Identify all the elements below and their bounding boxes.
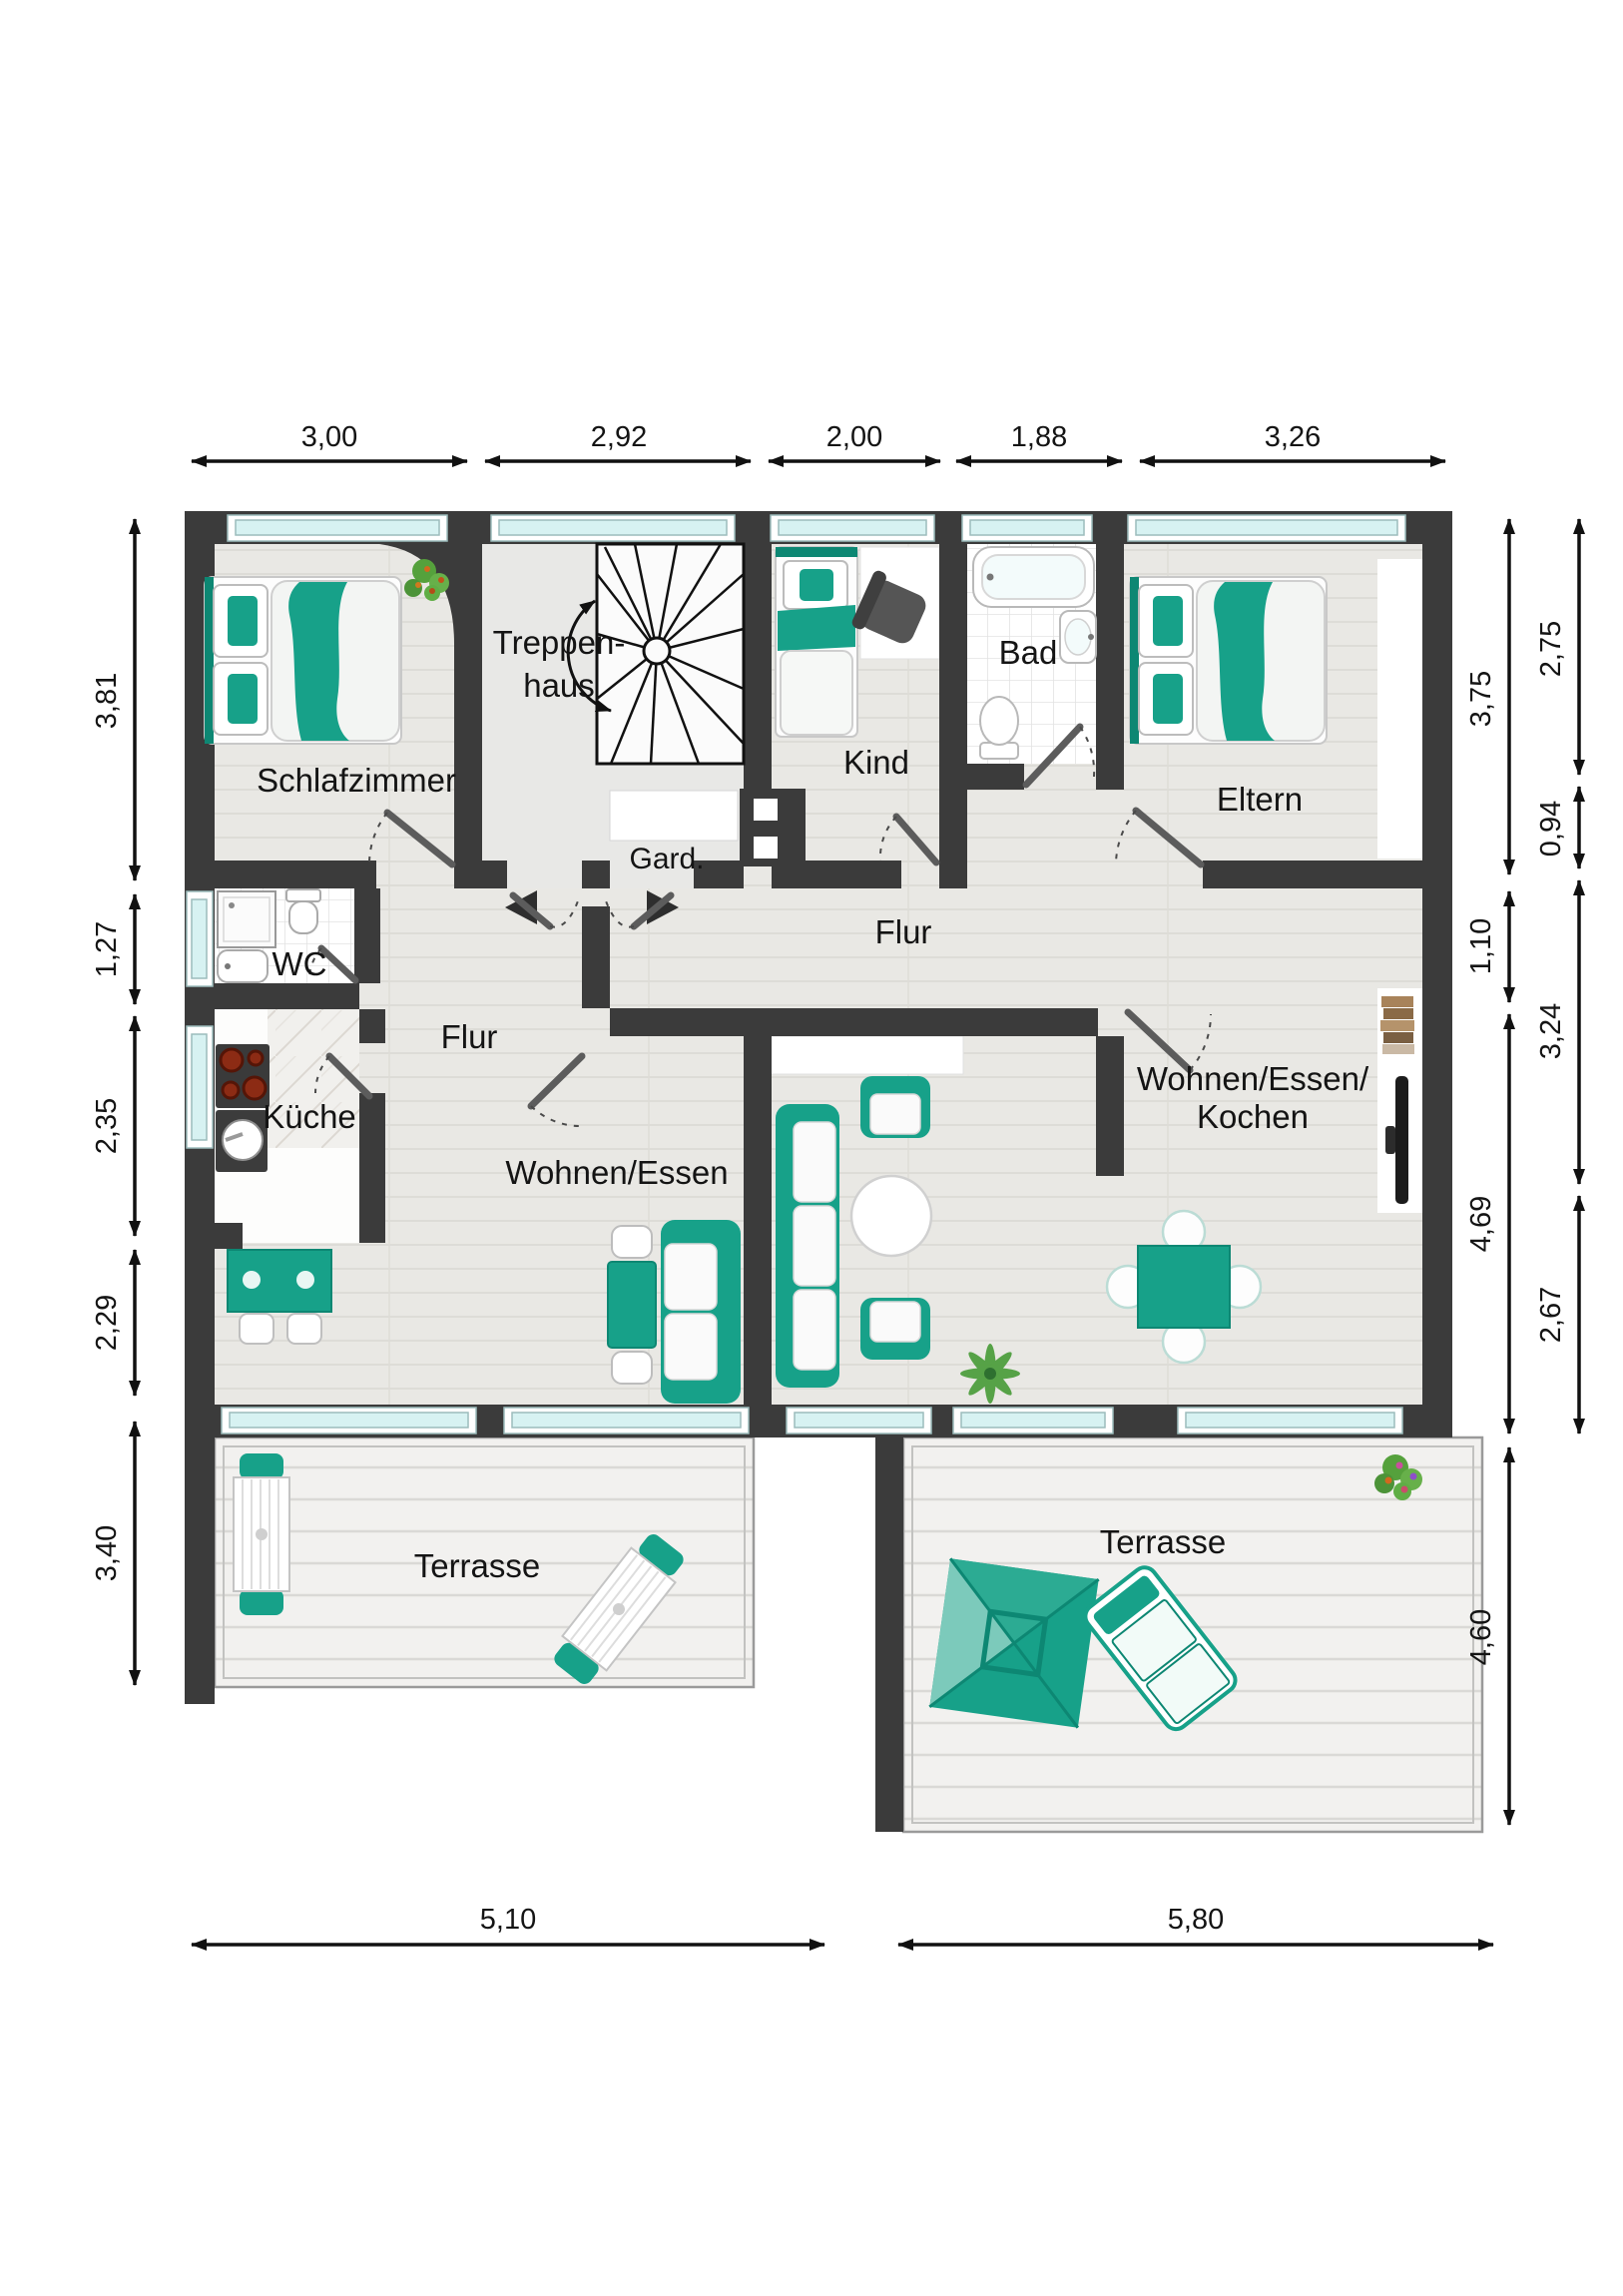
wall-schlafzimmer-bottom <box>215 861 376 888</box>
wall-wc-bottom <box>185 983 359 1009</box>
living-armchair-top <box>860 1076 930 1138</box>
living-round-table <box>851 1176 931 1256</box>
room-label-terrasse-left: Terrasse <box>414 1547 541 1584</box>
bad-sink <box>1060 611 1096 663</box>
living-sofa <box>776 1104 839 1388</box>
dim-left-3: 2,29 <box>91 1295 123 1351</box>
chimney-flue-1 <box>754 799 778 821</box>
window-bottom-we-2 <box>504 1408 749 1434</box>
wall-flur-bottom <box>610 1008 1098 1036</box>
room-label-eltern: Eltern <box>1217 781 1303 818</box>
room-label-gard: Gard. <box>629 843 704 875</box>
wall-bad-eltern <box>1096 544 1124 790</box>
wc-toilet <box>286 889 320 933</box>
wall-kind-bottom <box>772 861 901 888</box>
window-left-wc <box>187 891 213 986</box>
dim-top-3: 1,88 <box>1011 421 1067 453</box>
wall-flur-divider <box>582 906 610 1008</box>
living-sideboard <box>759 1036 963 1074</box>
kueche-sink <box>216 1110 268 1172</box>
wall-central-wek <box>1096 1036 1124 1176</box>
dim-top-2: 2,00 <box>826 421 882 453</box>
dim-top-0: 3,00 <box>301 421 357 453</box>
wall-kueche-right <box>359 1093 385 1243</box>
floor-plan-svg: Schlafzimmer Treppen- haus Gard. Kind Ba… <box>0 0 1623 2296</box>
room-label-flur-left: Flur <box>441 1018 498 1055</box>
window-bottom-wek-2 <box>1178 1408 1402 1434</box>
dim-chain-left: 3,81 1,27 2,35 2,29 3,40 <box>91 519 135 1685</box>
toilet <box>980 697 1018 759</box>
dim-chain-top: 3,00 2,92 2,00 1,88 3,26 <box>192 421 1445 461</box>
dim-right-outer-1: 0,94 <box>1535 801 1567 857</box>
room-label-terrasse-right: Terrasse <box>1100 1523 1227 1560</box>
wall-terrace-right-left <box>875 1437 903 1832</box>
room-label-wek-2: Kochen <box>1197 1098 1309 1135</box>
eltern-wardrobe <box>1377 559 1422 859</box>
we-small-table-set <box>608 1226 656 1384</box>
living-armchair-bottom <box>860 1298 930 1360</box>
terrace-left-table-1 <box>234 1453 289 1615</box>
dim-left-0: 3,81 <box>91 673 123 729</box>
dim-chain-right-outer: 2,75 0,94 3,24 2,67 <box>1535 519 1579 1434</box>
window-top-eltern <box>1128 515 1405 541</box>
room-label-wohnen-essen: Wohnen/Essen <box>505 1154 728 1191</box>
dim-bottom-0: 5,10 <box>480 1904 536 1936</box>
dim-top-1: 2,92 <box>591 421 647 453</box>
window-top-kind <box>771 515 934 541</box>
wall-kueche-stub <box>185 1223 243 1249</box>
wc-sink <box>218 950 268 982</box>
window-top-treppenhaus <box>491 515 735 541</box>
living-plant <box>960 1344 1020 1404</box>
schlafzimmer-bed <box>205 577 401 744</box>
wall-kind-bad <box>939 544 967 764</box>
kind-bed <box>776 547 857 737</box>
dim-left-4: 3,40 <box>91 1525 123 1581</box>
wall-we-central <box>744 1036 772 1405</box>
room-label-bad: Bad <box>999 634 1058 671</box>
floor-plan-page: Schlafzimmer Treppen- haus Gard. Kind Ba… <box>0 0 1623 2296</box>
wall-bad-bottom <box>939 764 1024 790</box>
dim-chain-right-inner: 3,75 1,10 4,69 4,60 <box>1465 519 1509 1825</box>
wall-entry-mid-pier <box>582 861 610 888</box>
dim-right-inner-2: 4,69 <box>1465 1196 1497 1252</box>
garderobe-cabinet <box>610 791 738 841</box>
wall-entry-left-pier <box>482 861 507 888</box>
dim-top-4: 3,26 <box>1265 421 1321 453</box>
chimney-flue-2 <box>754 837 778 859</box>
window-bottom-living <box>787 1408 931 1434</box>
window-top-bad <box>962 515 1092 541</box>
bathtub <box>973 547 1094 607</box>
wall-treppenhaus-kind <box>744 544 772 789</box>
room-label-kueche: Küche <box>263 1098 356 1135</box>
room-label-treppenhaus-2: haus <box>523 667 595 704</box>
window-left-kueche <box>187 1026 213 1148</box>
room-label-wek-1: Wohnen/Essen/ <box>1137 1060 1369 1097</box>
room-label-kind: Kind <box>843 744 909 781</box>
dim-right-outer-3: 2,67 <box>1535 1287 1567 1343</box>
dim-bottom-1: 5,80 <box>1168 1904 1224 1936</box>
dim-left-1: 1,27 <box>91 921 123 977</box>
wall-kueche-top-seg <box>359 1009 385 1043</box>
dim-right-outer-0: 2,75 <box>1535 621 1567 677</box>
window-bottom-wek-1 <box>953 1408 1113 1434</box>
dim-left-2: 2,35 <box>91 1098 123 1154</box>
we-loveseat <box>661 1220 741 1404</box>
eltern-bed <box>1130 577 1327 744</box>
room-label-schlafzimmer: Schlafzimmer <box>257 762 456 799</box>
stove <box>216 1044 270 1108</box>
dim-chain-bottom: 5,10 5,80 <box>192 1904 1493 1945</box>
room-label-wc: WC <box>272 945 327 982</box>
dim-right-inner-0: 3,75 <box>1465 671 1497 727</box>
terrace-parasol <box>929 1558 1098 1727</box>
room-label-flur-center: Flur <box>875 913 932 950</box>
wall-eltern-bottom <box>1203 861 1422 888</box>
dim-right-outer-2: 3,24 <box>1535 1003 1567 1059</box>
dim-right-inner-1: 1,10 <box>1465 918 1497 974</box>
window-bottom-we-1 <box>222 1408 476 1434</box>
wc-shower <box>218 891 275 947</box>
room-label-treppenhaus-1: Treppen- <box>493 624 626 661</box>
window-top-schlafzimmer <box>228 515 447 541</box>
bookshelf <box>1380 996 1414 1054</box>
dim-right-inner-3: 4,60 <box>1465 1609 1497 1665</box>
wall-wc-right <box>354 888 380 983</box>
wall-right <box>1422 511 1452 1437</box>
